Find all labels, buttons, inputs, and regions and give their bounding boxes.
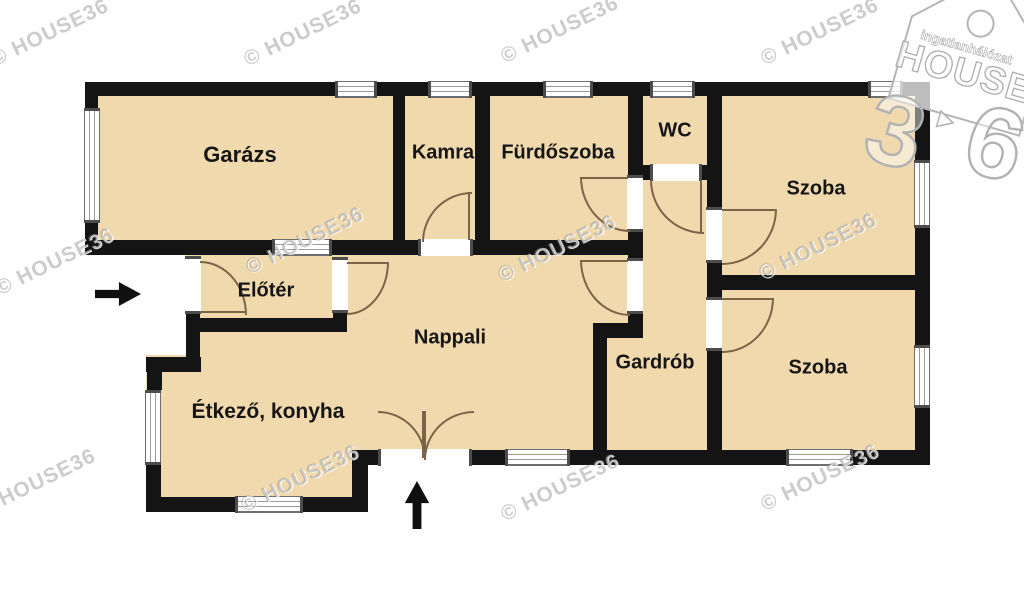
door-opening bbox=[706, 297, 722, 351]
door-leaf bbox=[722, 209, 775, 211]
wall-segment bbox=[593, 82, 650, 96]
wall-segment bbox=[332, 240, 418, 255]
wall-segment bbox=[707, 351, 722, 465]
wall-segment bbox=[393, 96, 405, 240]
house36-logo: ingatlanhálózat HOUSE 3 6 bbox=[859, 0, 1024, 204]
door-opening bbox=[332, 257, 348, 313]
door-leaf bbox=[700, 180, 702, 232]
wall-segment bbox=[475, 96, 490, 240]
door-leaf bbox=[580, 177, 628, 179]
wall-segment bbox=[722, 275, 915, 290]
room-label-nappali: Nappali bbox=[414, 327, 486, 350]
watermark: © HOUSE36 bbox=[240, 0, 366, 72]
door-leaf bbox=[347, 262, 387, 264]
window bbox=[914, 345, 930, 408]
wall-segment bbox=[85, 82, 98, 108]
door-leaf bbox=[200, 311, 245, 313]
door-leaf bbox=[424, 411, 426, 458]
door-leaf bbox=[580, 260, 628, 262]
room-label-gardrob: Gardrób bbox=[616, 352, 695, 375]
window bbox=[145, 390, 161, 465]
door-leaf bbox=[722, 298, 772, 300]
watermark: © HOUSE36 bbox=[0, 444, 100, 522]
wall-segment bbox=[707, 263, 722, 297]
wall-segment bbox=[146, 497, 235, 512]
wall-segment bbox=[333, 313, 347, 332]
wall-segment bbox=[915, 228, 930, 345]
wall-segment bbox=[472, 450, 505, 465]
window bbox=[543, 81, 593, 98]
floor-plan: Garázs Kamra Fürdőszoba WC Szoba Előtér … bbox=[0, 0, 1024, 604]
wall-segment bbox=[186, 318, 347, 332]
wall-segment bbox=[472, 82, 543, 96]
logo-digit-3: 3 bbox=[853, 70, 937, 193]
wall-segment bbox=[147, 372, 162, 390]
window bbox=[335, 81, 377, 98]
window bbox=[505, 449, 570, 466]
entry-arrow-icon-bottom bbox=[404, 481, 430, 529]
wall-segment bbox=[707, 96, 722, 207]
wall-segment bbox=[628, 96, 643, 175]
wall-segment bbox=[146, 357, 201, 372]
entry-arrow-icon-left bbox=[95, 281, 141, 307]
wall-segment bbox=[85, 82, 335, 96]
room-label-etkezo-konyha: Étkező, konyha bbox=[192, 400, 345, 424]
door-opening bbox=[706, 207, 722, 263]
room-label-kamra: Kamra bbox=[412, 142, 474, 165]
wall-segment bbox=[593, 323, 607, 465]
window bbox=[84, 108, 100, 223]
wall-segment bbox=[695, 82, 868, 96]
room-label-garazs: Garázs bbox=[203, 142, 276, 168]
room-label-furdoszoba: Fürdőszoba bbox=[501, 142, 614, 165]
watermark: © HOUSE36 bbox=[497, 0, 623, 69]
room-label-szoba-also: Szoba bbox=[789, 357, 848, 380]
window bbox=[650, 81, 695, 98]
watermark: © HOUSE36 bbox=[0, 223, 118, 301]
room-label-szoba-felso: Szoba bbox=[787, 178, 846, 201]
door-opening bbox=[185, 256, 201, 314]
wall-segment bbox=[643, 165, 650, 180]
door-leaf bbox=[468, 192, 470, 240]
wall-segment bbox=[377, 82, 428, 96]
window bbox=[428, 81, 472, 98]
wall-segment bbox=[628, 232, 643, 258]
door-opening bbox=[650, 164, 702, 181]
room-label-wc: WC bbox=[658, 120, 691, 143]
watermark: © HOUSE36 bbox=[0, 0, 113, 72]
wall-segment bbox=[915, 408, 930, 465]
room-label-eloter: Előtér bbox=[238, 280, 295, 303]
